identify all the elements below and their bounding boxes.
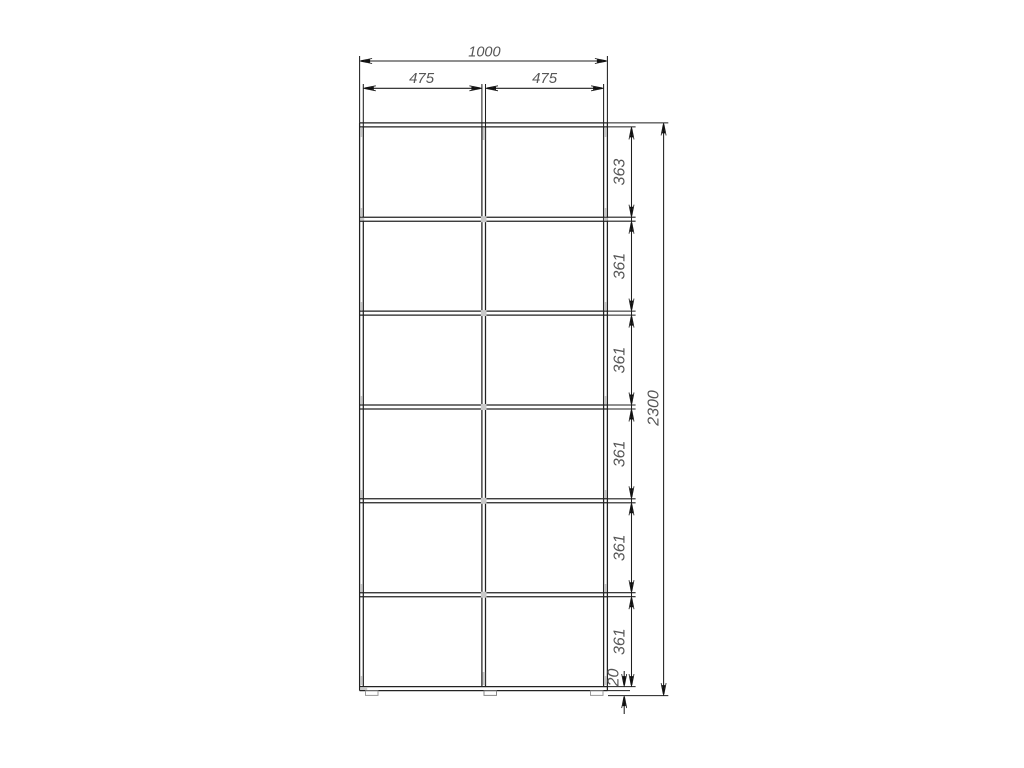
svg-text:20: 20 [605,669,622,688]
svg-text:363: 363 [611,159,628,186]
svg-text:361: 361 [611,628,628,655]
svg-text:475: 475 [409,70,435,87]
svg-text:361: 361 [611,441,628,468]
svg-text:1000: 1000 [468,44,500,60]
svg-text:361: 361 [611,534,628,561]
svg-text:2300: 2300 [645,390,662,427]
svg-text:361: 361 [611,347,628,374]
svg-text:361: 361 [611,253,628,280]
svg-text:475: 475 [532,70,558,87]
